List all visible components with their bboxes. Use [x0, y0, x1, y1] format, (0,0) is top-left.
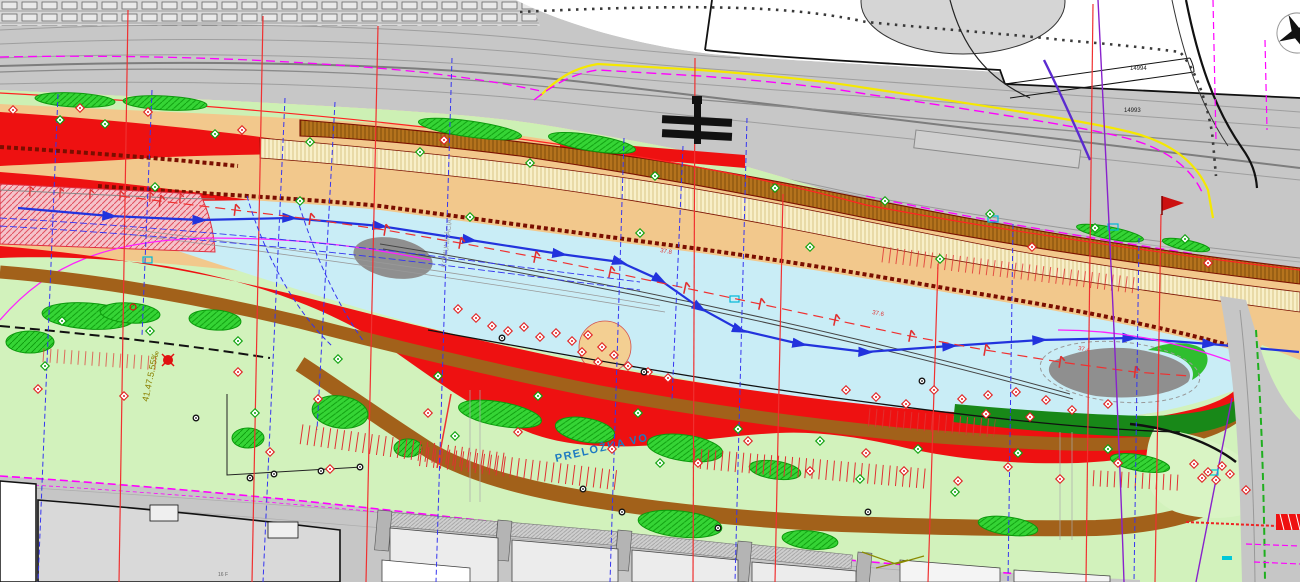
building-notch-2	[268, 522, 298, 538]
survey-point-marker	[641, 369, 647, 375]
building-label: 16 F	[218, 572, 228, 578]
building-notch-1	[150, 505, 178, 521]
survey-point-marker	[318, 468, 324, 474]
survey-point-marker	[619, 509, 625, 515]
survey-point-marker	[580, 486, 586, 492]
survey-point-marker	[193, 415, 199, 421]
survey-point-marker	[247, 475, 253, 481]
survey-point-marker	[865, 509, 871, 515]
pink-hatched-area	[0, 184, 215, 252]
parcel-number-lower: 14993	[1124, 108, 1141, 114]
survey-point-marker	[715, 525, 721, 531]
site-plan-drawing: 14994 14993	[0, 0, 1300, 582]
parcel-number-upper: 14994	[1130, 66, 1147, 72]
survey-point-marker	[919, 378, 925, 384]
survey-point-marker	[271, 471, 277, 477]
platform-strip	[0, 0, 540, 26]
demolition-zone	[0, 184, 215, 252]
site-plan-canvas: 14994 14993	[0, 0, 1300, 582]
survey-point-marker	[499, 335, 505, 341]
building-white-west	[0, 481, 36, 582]
signal-box-cyan-2	[1222, 556, 1232, 560]
survey-point-marker	[357, 464, 363, 470]
